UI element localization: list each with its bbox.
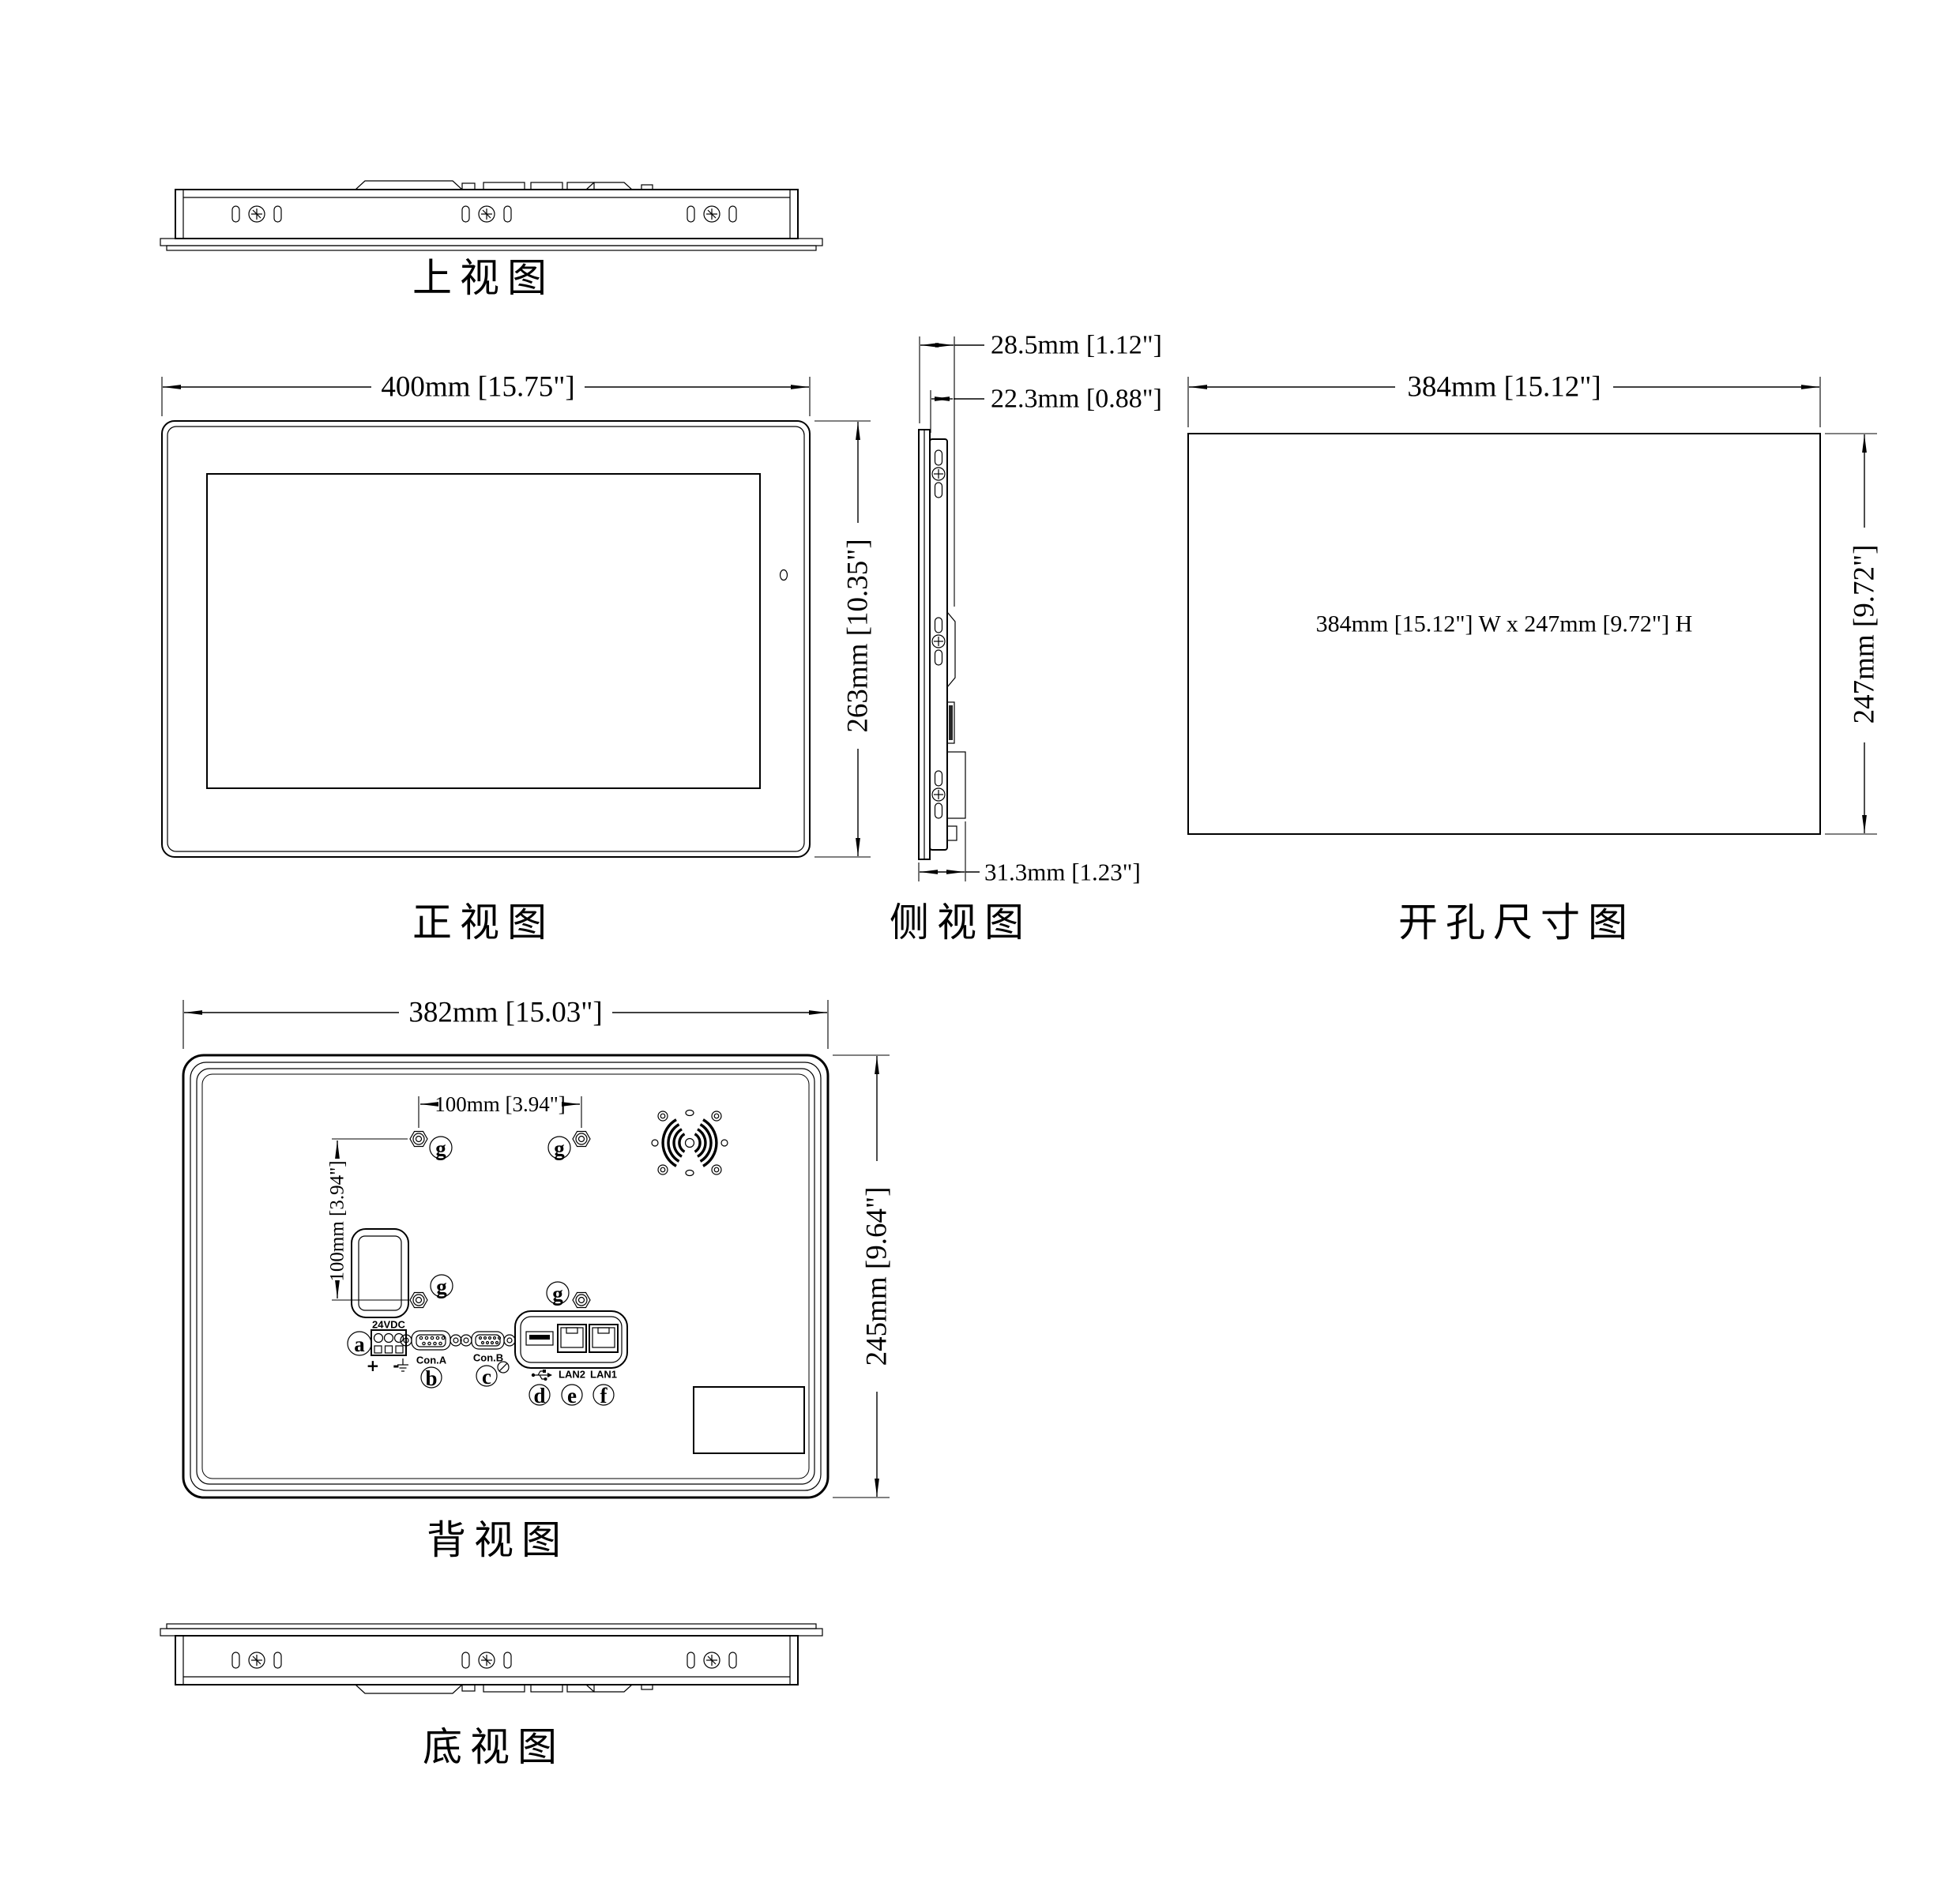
side-body-depth-dim: 22.3mm [0.88"] bbox=[991, 385, 1162, 414]
cutout-view-caption: 开孔尺寸图 bbox=[1398, 900, 1635, 945]
serial-port-con-a: Con.A bbox=[401, 1331, 461, 1366]
front-view-drawing: 400mm [15.75"] 263mm [10.35"] 正视图 bbox=[162, 371, 875, 945]
side-overall-depth-dim: 31.3mm [1.23"] bbox=[984, 859, 1141, 886]
svg-text:a: a bbox=[354, 1332, 365, 1356]
back-mount-height-dim: 100mm [3.94"] bbox=[327, 1160, 348, 1281]
svg-text:c: c bbox=[482, 1365, 491, 1389]
svg-text:f: f bbox=[600, 1384, 608, 1407]
back-width-dim: 382mm [15.03"] bbox=[408, 997, 602, 1029]
usb-trident-icon bbox=[532, 1370, 552, 1381]
svg-text:e: e bbox=[567, 1384, 577, 1407]
con-a-label: Con.A bbox=[416, 1355, 447, 1366]
drawing-sheet: 上视图 400mm [15.75"] 263mm [10.35"] 正视图 bbox=[0, 0, 1960, 1879]
top-view-caption: 上视图 bbox=[412, 256, 555, 300]
cutout-size-note: 384mm [15.12"] W x 247mm [9.72"] H bbox=[1316, 611, 1693, 637]
callout-d: d bbox=[529, 1384, 550, 1407]
cutout-view-drawing: 384mm [15.12"] 247mm [9.72"] 384mm [15.1… bbox=[1188, 371, 1881, 945]
back-view-drawing: g g g g 100mm [3.94"] 100mm [3.94"] bbox=[183, 997, 893, 1563]
callout-b: b bbox=[421, 1366, 442, 1390]
display-screen-area bbox=[207, 474, 760, 788]
side-view-caption: 侧视图 bbox=[890, 900, 1032, 945]
power-terminal-block: 24VDC + - bbox=[366, 1319, 408, 1376]
side-view-drawing: 28.5mm [1.12"] 22.3mm [0.88"] 31.3mm [1.… bbox=[890, 331, 1162, 945]
power-label: 24VDC bbox=[372, 1319, 406, 1331]
svg-text:b: b bbox=[425, 1366, 437, 1390]
callout-e: e bbox=[562, 1384, 582, 1407]
speaker-grille-icon bbox=[652, 1110, 728, 1176]
bottom-view-drawing: 底视图 bbox=[160, 1624, 822, 1769]
svg-text:g: g bbox=[552, 1282, 563, 1306]
callout-f: f bbox=[593, 1384, 614, 1407]
callout-g: g bbox=[430, 1137, 452, 1160]
lan1-label: LAN1 bbox=[590, 1369, 617, 1381]
svg-text:g: g bbox=[435, 1137, 446, 1160]
panel-views-drawing: 上视图 400mm [15.75"] 263mm [10.35"] 正视图 bbox=[0, 0, 1960, 1879]
back-mount-width-dim: 100mm [3.94"] bbox=[435, 1092, 566, 1116]
top-view-drawing: 上视图 bbox=[160, 181, 822, 300]
label-plate bbox=[694, 1387, 804, 1453]
cutout-height-dim: 247mm [9.72"] bbox=[1849, 545, 1881, 724]
serial-port-con-b: Con.B bbox=[461, 1332, 515, 1364]
lan2-port bbox=[558, 1325, 586, 1352]
svg-text:g: g bbox=[436, 1275, 447, 1298]
lan2-label: LAN2 bbox=[559, 1369, 585, 1381]
bottom-view-caption: 底视图 bbox=[423, 1725, 565, 1769]
side-depth-with-connectors-dim: 28.5mm [1.12"] bbox=[991, 331, 1162, 360]
callout-a: a bbox=[348, 1332, 371, 1356]
callout-g: g bbox=[431, 1275, 453, 1298]
cutout-width-dim: 384mm [15.12"] bbox=[1407, 371, 1601, 404]
io-bay bbox=[515, 1311, 627, 1368]
front-view-caption: 正视图 bbox=[412, 900, 555, 945]
con-b-label: Con.B bbox=[473, 1352, 503, 1364]
callout-c: c bbox=[476, 1365, 497, 1389]
back-height-dim: 245mm [9.64"] bbox=[861, 1187, 893, 1366]
callout-g: g bbox=[548, 1137, 570, 1160]
svg-text:g: g bbox=[554, 1137, 565, 1160]
battery-cover bbox=[352, 1229, 408, 1317]
callout-g: g bbox=[547, 1282, 569, 1306]
usb-port bbox=[526, 1332, 553, 1345]
svg-text:d: d bbox=[533, 1384, 545, 1407]
back-view-caption: 背视图 bbox=[427, 1518, 569, 1562]
power-polarity: + - bbox=[366, 1356, 403, 1375]
lan1-port bbox=[589, 1325, 618, 1352]
front-led-indicator bbox=[781, 570, 788, 581]
front-height-dim: 263mm [10.35"] bbox=[842, 539, 875, 732]
front-width-dim: 400mm [15.75"] bbox=[381, 371, 574, 404]
